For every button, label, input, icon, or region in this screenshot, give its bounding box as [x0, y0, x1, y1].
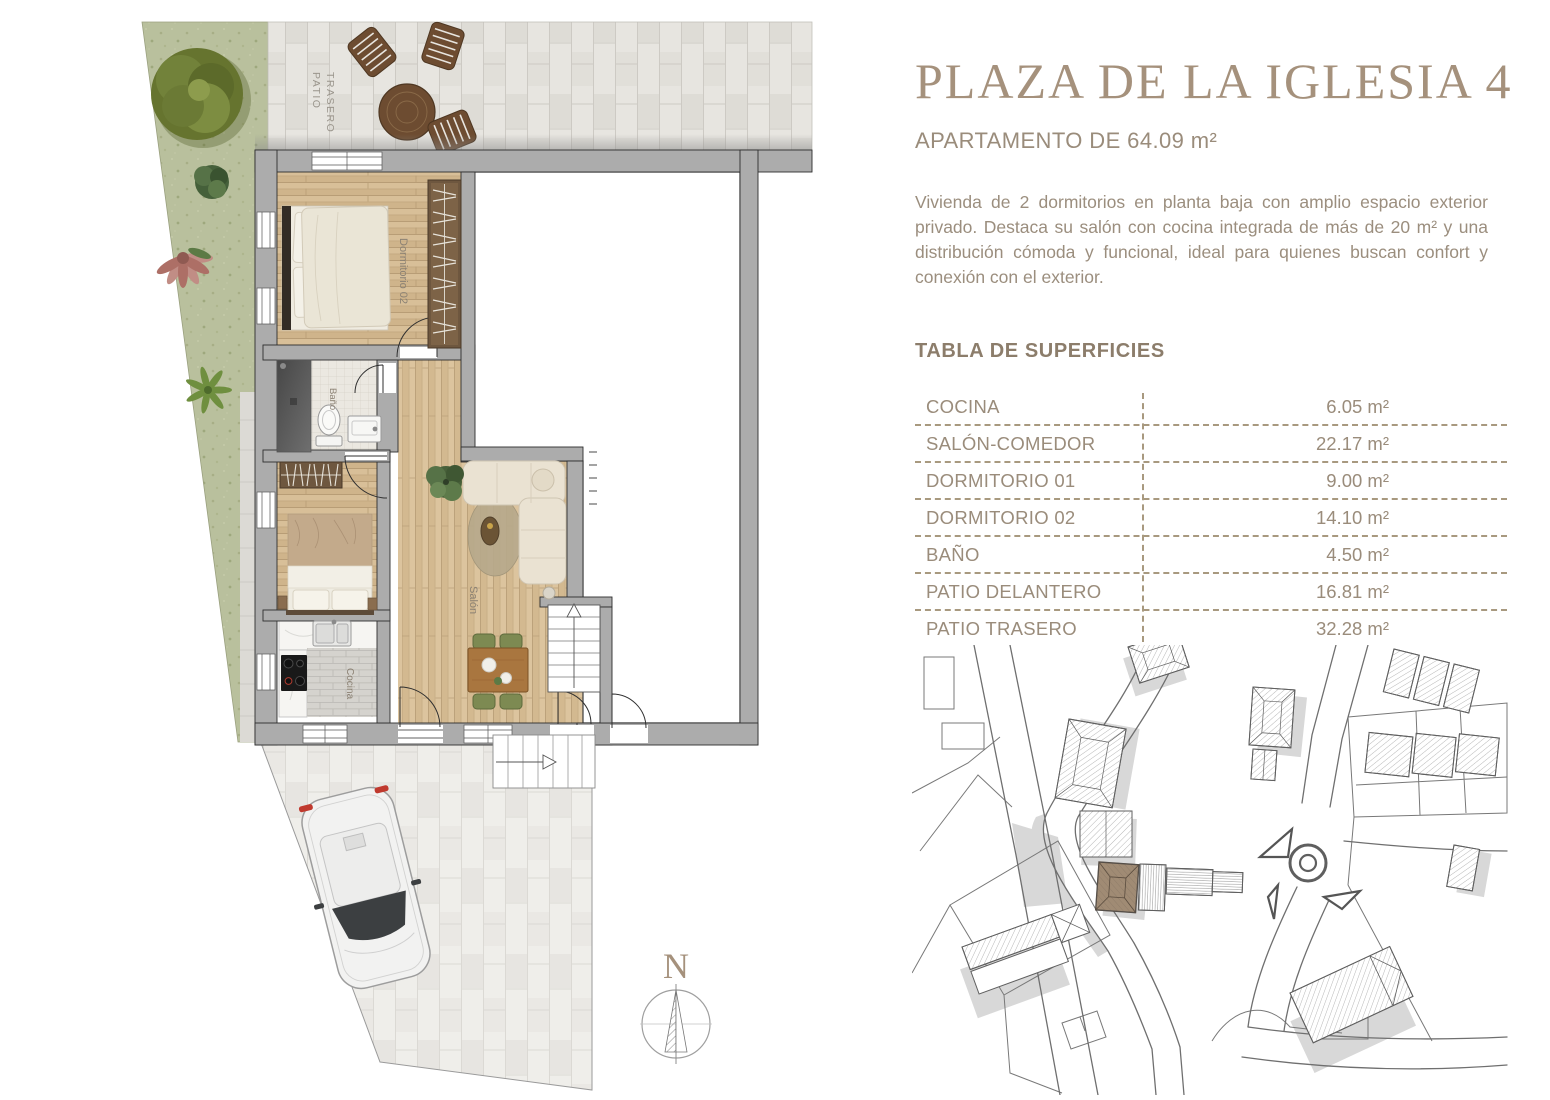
sink-kitchen-icon: [313, 620, 351, 646]
row-label: PATIO DELANTERO: [915, 581, 1101, 603]
row-label: COCINA: [915, 396, 1000, 418]
apartment-subtitle: APARTAMENTO DE 64.09 m²: [915, 128, 1510, 154]
row-label: DORMITORIO 01: [915, 470, 1076, 492]
stove-icon: [281, 655, 307, 691]
wardrobe-dormitorio-01: [280, 462, 342, 488]
garden: [142, 22, 268, 742]
row-value: 14.10 m²: [1316, 507, 1507, 529]
info-panel: PLAZA DE LA IGLESIA 4 APARTAMENTO DE 64.…: [915, 0, 1510, 646]
row-label: DORMITORIO 02: [915, 507, 1076, 529]
site-map: [912, 645, 1512, 1095]
floor-plan: PATIO TRASERO: [0, 0, 880, 1095]
row-value: 6.05 m²: [1326, 396, 1507, 418]
highlighted-building: [1096, 862, 1139, 913]
row-label: BAÑO: [915, 544, 980, 566]
table-row: COCINA 6.05 m²: [915, 389, 1507, 426]
compass: N: [640, 946, 712, 1064]
compass-north-label: N: [663, 946, 689, 986]
page-title: PLAZA DE LA IGLESIA 4: [915, 52, 1510, 110]
surfaces-table: COCINA 6.05 m² SALÓN-COMEDOR 22.17 m² DO…: [915, 389, 1507, 646]
bano-label: Baño: [327, 388, 338, 410]
surfaces-heading: TABLA DE SUPERFICIES: [915, 340, 1510, 363]
wall-shadow: [255, 134, 812, 150]
wardrobe-dormitorio-02: [428, 180, 461, 348]
row-value: 4.50 m²: [1326, 544, 1507, 566]
table-divider: [1142, 393, 1144, 642]
stairs-interior: [548, 604, 600, 692]
table-row: PATIO TRASERO 32.28 m²: [915, 611, 1507, 646]
salon-label: Salón: [467, 586, 479, 614]
row-value: 16.81 m²: [1316, 581, 1507, 603]
floor-lamp: [543, 587, 555, 599]
row-value: 9.00 m²: [1326, 470, 1507, 492]
bed-dormitorio-01: [278, 514, 377, 615]
stairs-exterior: [493, 735, 595, 788]
row-label: SALÓN-COMEDOR: [915, 433, 1095, 455]
coffee-table: [481, 517, 499, 545]
table-row: DORMITORIO 01 9.00 m²: [915, 463, 1507, 500]
description: Vivienda de 2 dormitorios en planta baja…: [915, 190, 1488, 290]
sink-icon: [348, 416, 381, 442]
table-row: BAÑO 4.50 m²: [915, 537, 1507, 574]
patio-trasero-label-line2: TRASERO: [324, 72, 336, 133]
patio-table: [379, 84, 435, 140]
patio-trasero-label-line1: PATIO: [310, 72, 322, 109]
cocina-label: Cocina: [344, 668, 355, 700]
toilet-icon: [316, 405, 342, 446]
row-value: 22.17 m²: [1316, 433, 1507, 455]
bed-dormitorio-02: [282, 206, 391, 330]
table-row: DORMITORIO 02 14.10 m²: [915, 500, 1507, 537]
row-label: PATIO TRASERO: [915, 618, 1077, 640]
row-value: 32.28 m²: [1316, 618, 1507, 640]
compass-needle: [665, 990, 676, 1052]
map-shadows: [960, 645, 1492, 1073]
roundabout: [1290, 845, 1326, 881]
table-row: SALÓN-COMEDOR 22.17 m²: [915, 426, 1507, 463]
dormitorio-02-label: Dormitorio 02: [397, 238, 409, 304]
traffic-islands: [1260, 829, 1360, 919]
table-row: PATIO DELANTERO 16.81 m²: [915, 574, 1507, 611]
